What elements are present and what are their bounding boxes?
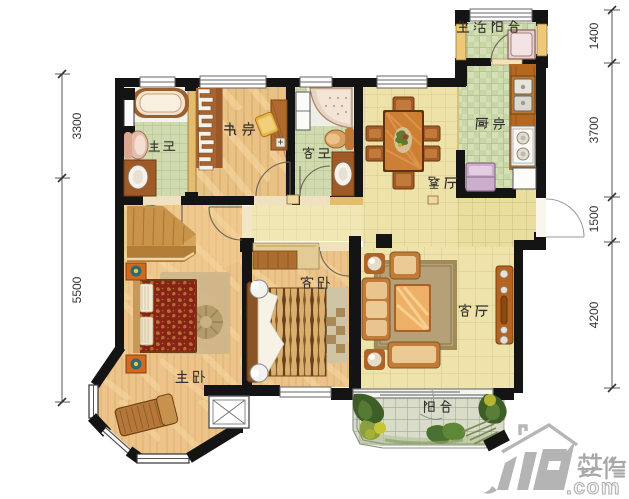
svg-text:4200: 4200 [587,301,601,328]
svg-text:1500: 1500 [587,205,601,232]
svg-text:3700: 3700 [587,116,601,143]
svg-text:.com: .com [566,476,621,499]
svg-text:1400: 1400 [587,22,601,49]
svg-text:3300: 3300 [70,112,84,139]
svg-text:5500: 5500 [70,276,84,303]
